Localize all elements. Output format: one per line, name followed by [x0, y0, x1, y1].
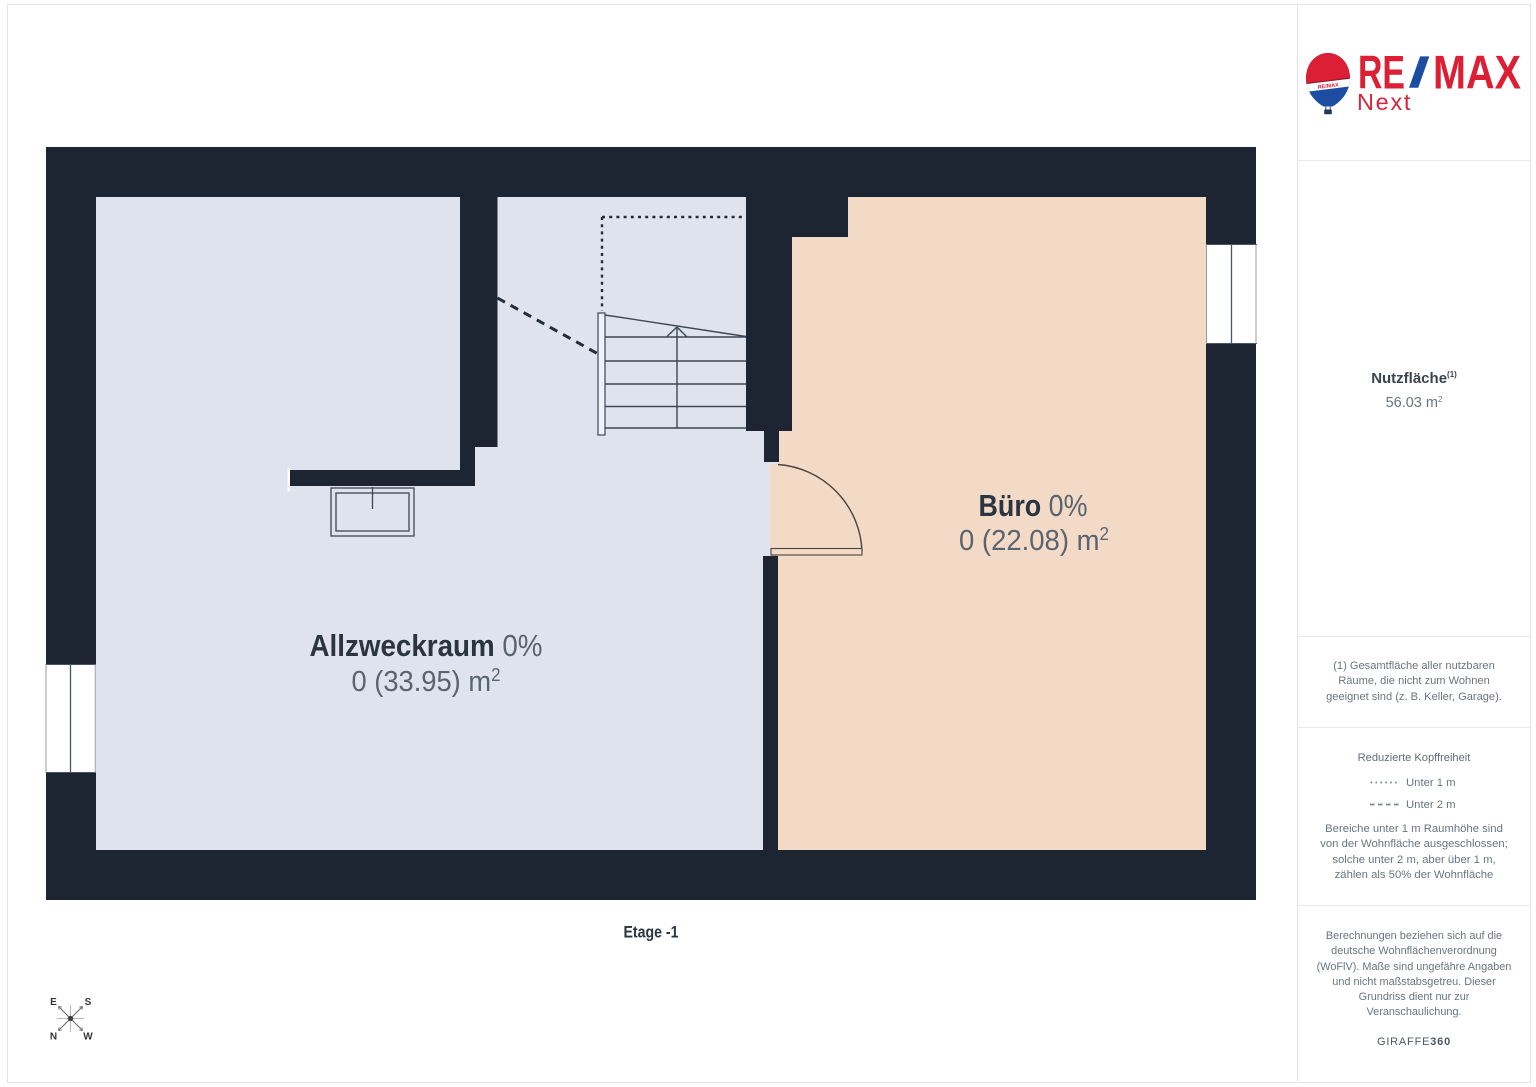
- svg-text:0 (22.08) m2: 0 (22.08) m2: [959, 524, 1109, 557]
- svg-text:S: S: [85, 997, 92, 1008]
- svg-text:Etage -1: Etage -1: [624, 924, 679, 942]
- svg-text:W: W: [83, 1032, 93, 1043]
- svg-text:Allzweckraum 0%: Allzweckraum 0%: [310, 628, 543, 663]
- svg-text:0 (33.95) m2: 0 (33.95) m2: [352, 665, 501, 698]
- svg-text:Büro 0%: Büro 0%: [979, 488, 1088, 523]
- svg-text:N: N: [50, 1032, 57, 1043]
- svg-text:E: E: [50, 997, 57, 1008]
